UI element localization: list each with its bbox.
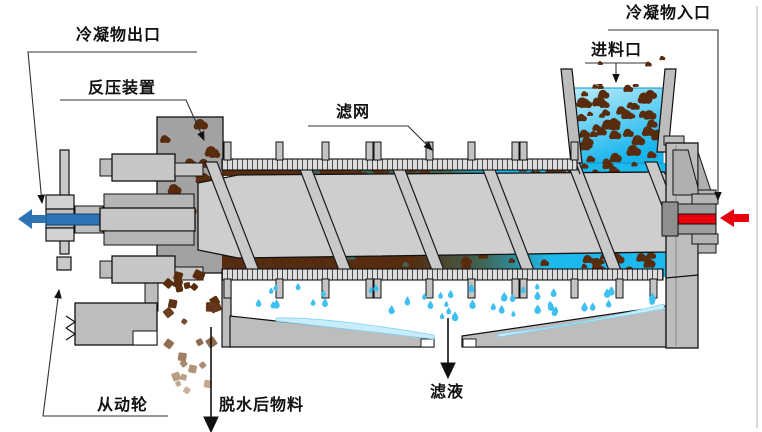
label-condensate-outlet: 冷凝物出口 bbox=[76, 27, 161, 43]
machine-drawing bbox=[0, 0, 762, 432]
label-dewatered-material: 脱水后物料 bbox=[219, 397, 304, 413]
right-end-assembly bbox=[662, 136, 718, 348]
screw-press-diagram: 冷凝物出口 反压装置 滤网 进料口 冷凝物入口 从动轮 脱水后物料 滤液 bbox=[0, 0, 762, 432]
label-feed-inlet: 进料口 bbox=[591, 42, 642, 58]
driven-wheel bbox=[46, 150, 74, 270]
condensate-in-flow-arrow bbox=[720, 209, 749, 227]
label-filtrate: 滤液 bbox=[430, 384, 464, 400]
condensate-out-flow-arrow bbox=[18, 209, 46, 229]
left-base-foot bbox=[66, 280, 158, 345]
break-symbol bbox=[66, 316, 75, 340]
condensate-inlet-pipe bbox=[678, 214, 716, 224]
barrel bbox=[198, 69, 702, 298]
filter-screen-bottom bbox=[222, 269, 663, 280]
dewatered-material-particles bbox=[162, 269, 222, 395]
label-driven-wheel: 从动轮 bbox=[97, 397, 148, 413]
label-filter-screen: 滤网 bbox=[336, 104, 370, 120]
filter-screen-top bbox=[222, 159, 577, 170]
filtrate-trough bbox=[222, 272, 666, 347]
label-back-pressure-device: 反压装置 bbox=[88, 80, 156, 96]
filtrate-droplets bbox=[256, 283, 656, 321]
label-condensate-inlet: 冷凝物入口 bbox=[626, 5, 711, 21]
